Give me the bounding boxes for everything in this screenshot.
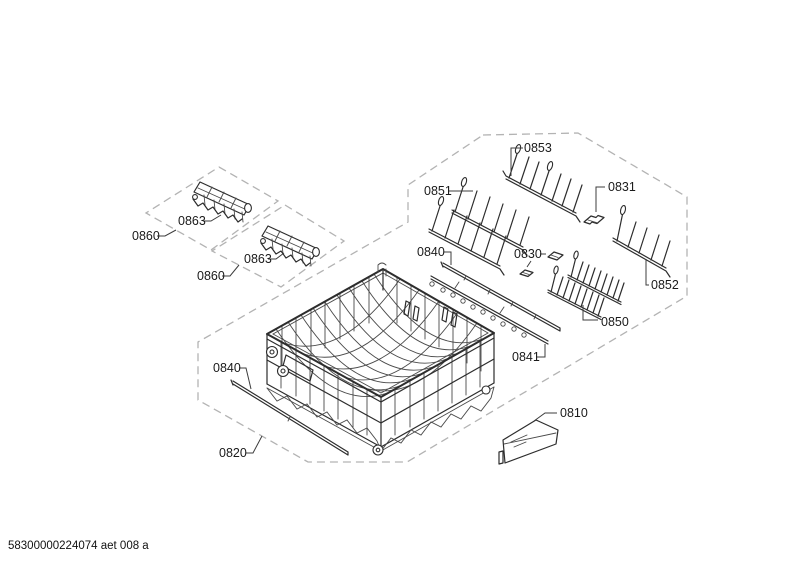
diagram-canvas: 0853 0851 0831 0840 0830 0852 0850 0841 … xyxy=(0,0,800,566)
part-0840-rod-top xyxy=(441,262,560,331)
part-0840-rod-bottom xyxy=(231,380,348,455)
basket-interior-wires xyxy=(276,274,485,397)
document-code: 58300000224074 aet 008 a xyxy=(8,540,149,552)
label-0853: 0853 xyxy=(524,141,552,155)
label-0863-right: 0863 xyxy=(244,252,272,266)
label-0830: 0830 xyxy=(514,247,542,261)
label-0860-left: 0860 xyxy=(132,229,160,243)
part-0850-tine-rows xyxy=(548,251,624,320)
part-0853-tine-row xyxy=(503,144,582,222)
region-outline-0860-left xyxy=(146,167,278,250)
label-0840-bottom: 0840 xyxy=(213,361,241,375)
dashed-regions xyxy=(146,133,687,462)
region-outline-0860-right xyxy=(212,205,344,287)
label-0851: 0851 xyxy=(424,184,452,198)
label-0852: 0852 xyxy=(651,278,679,292)
part-0810-tray xyxy=(499,420,558,464)
part-0831-clip xyxy=(584,216,604,225)
label-0831: 0831 xyxy=(608,180,636,194)
label-0810: 0810 xyxy=(560,406,588,420)
label-0841: 0841 xyxy=(512,350,540,364)
label-0863-left: 0863 xyxy=(178,214,206,228)
part-0852-tine-row xyxy=(613,205,670,277)
label-0850: 0850 xyxy=(601,315,629,329)
exploded-parts-diagram: 0853 0851 0831 0840 0830 0852 0850 0841 … xyxy=(0,0,800,566)
label-0820: 0820 xyxy=(219,446,247,460)
label-0860-right: 0860 xyxy=(197,269,225,283)
label-0840-top: 0840 xyxy=(417,245,445,259)
